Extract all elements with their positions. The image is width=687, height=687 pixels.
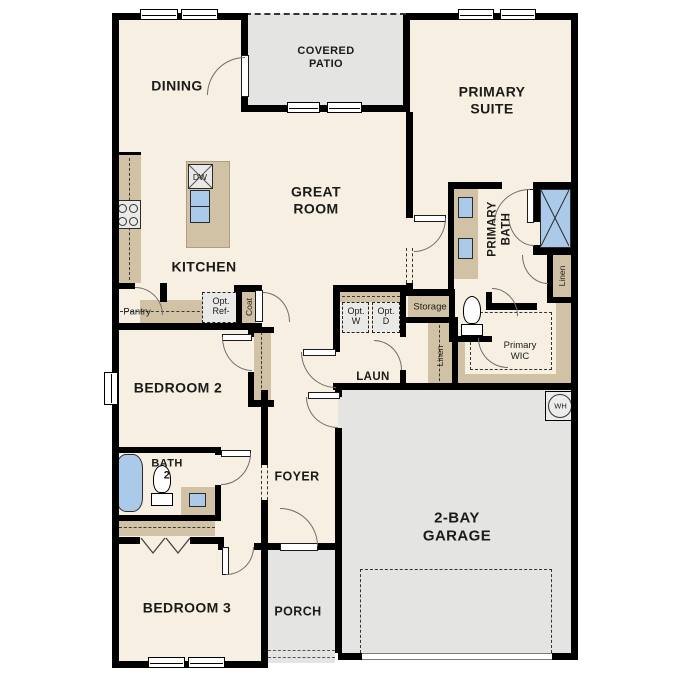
wall	[236, 292, 242, 323]
wall	[338, 653, 364, 660]
primary-toilet-tank	[461, 324, 483, 336]
feature-label-linen-hall: Linen	[435, 346, 445, 367]
wall	[254, 543, 262, 550]
room-label-primary-bath: PRIMARY BATH	[486, 201, 513, 256]
shower-cross-icon	[541, 190, 569, 246]
wall	[406, 317, 452, 323]
window	[327, 102, 362, 113]
feature-label-linen-primary: Linen	[557, 266, 567, 287]
wall	[333, 285, 413, 292]
window	[458, 9, 494, 20]
feature-label-opt-dryer: Opt. D	[377, 307, 394, 327]
room-label-bedroom2: BEDROOM 2	[134, 380, 222, 397]
room-label-bath2: BATH 2	[151, 458, 182, 481]
room-label-great-room: GREAT ROOM	[291, 183, 341, 216]
room-label-foyer: FOYER	[274, 470, 319, 485]
wall	[160, 283, 167, 302]
room-label-laundry: LAUN	[356, 371, 390, 385]
patio-roofline	[245, 13, 406, 15]
room-label-bedroom3: BEDROOM 3	[143, 600, 231, 617]
shower-symbol	[540, 189, 571, 248]
wall	[112, 283, 135, 289]
wall	[400, 292, 406, 337]
wall	[406, 289, 455, 296]
door-leaf	[255, 290, 263, 322]
wall	[400, 370, 406, 388]
wall	[333, 285, 340, 352]
room-label-covered-patio: COVERED PATIO	[297, 45, 354, 71]
window	[104, 372, 118, 405]
bath2-sink	[189, 493, 206, 507]
bedroom3-closet-rod	[119, 527, 215, 528]
feature-label-opt-ref: Opt. Ref-	[212, 297, 229, 317]
wall	[112, 13, 119, 668]
wall	[112, 13, 248, 20]
wall	[448, 182, 502, 189]
wall	[112, 515, 221, 521]
porch-step	[268, 657, 335, 658]
room-label-kitchen: KITCHEN	[171, 259, 236, 276]
room-label-primary-suite: PRIMARY SUITE	[459, 83, 526, 116]
wall	[448, 182, 454, 289]
wall	[403, 20, 410, 112]
primary-sink-1	[458, 197, 473, 218]
room-label-dining: DINING	[151, 78, 202, 95]
wall	[241, 105, 406, 112]
porch-step	[268, 650, 335, 651]
feature-label-coat: Coat	[244, 298, 254, 316]
primary-sink-2	[458, 238, 473, 259]
primary-toilet-bowl	[463, 296, 481, 324]
wall	[112, 447, 221, 453]
feature-label-storage: Storage	[413, 301, 446, 312]
feature-label-dishwasher: DW	[193, 172, 207, 182]
wall	[547, 297, 578, 303]
window	[140, 9, 178, 20]
feature-label-water-heater: WH	[554, 402, 567, 411]
bedroom2-closet-rod	[261, 332, 262, 398]
wall	[406, 112, 413, 218]
garage-door-outline	[360, 569, 552, 653]
laundry-counter	[340, 292, 402, 302]
feature-label-opt-washer: Opt. W	[347, 307, 364, 327]
wall	[112, 323, 262, 330]
room-label-porch: PORCH	[274, 605, 321, 620]
room-label-garage: 2-BAY GARAGE	[423, 509, 491, 544]
wall	[571, 13, 578, 660]
feature-label-pantry: Pantry	[123, 306, 150, 317]
counter-edge	[119, 152, 141, 155]
garage-door-threshold	[362, 653, 552, 660]
floor-plan: DINING COVERED PATIO PRIMARY SUITE GREAT…	[0, 0, 687, 687]
bath2-toilet-tank	[151, 493, 173, 506]
wic-wall-right	[556, 303, 571, 384]
cased-opening	[406, 248, 413, 283]
wall	[452, 317, 458, 388]
wall	[551, 653, 578, 660]
wall	[241, 13, 248, 57]
laundry-counter-line	[342, 296, 400, 297]
bifold-door-icon	[140, 537, 190, 555]
wall	[112, 537, 140, 544]
wall	[335, 550, 342, 653]
wall	[261, 550, 268, 661]
wall	[335, 428, 342, 550]
cased-opening	[261, 465, 268, 500]
wall	[261, 543, 280, 550]
bathtub-symbol	[116, 454, 143, 512]
wall	[533, 182, 540, 222]
wall	[318, 543, 342, 550]
window	[287, 102, 320, 113]
window	[188, 657, 225, 668]
wall	[533, 248, 578, 255]
wall	[248, 400, 274, 407]
window	[181, 9, 218, 20]
wall	[248, 327, 274, 333]
window	[148, 657, 185, 668]
island-sink-divider	[190, 206, 210, 207]
room-label-primary-wic: Primary WIC	[504, 340, 537, 362]
window	[500, 9, 536, 20]
